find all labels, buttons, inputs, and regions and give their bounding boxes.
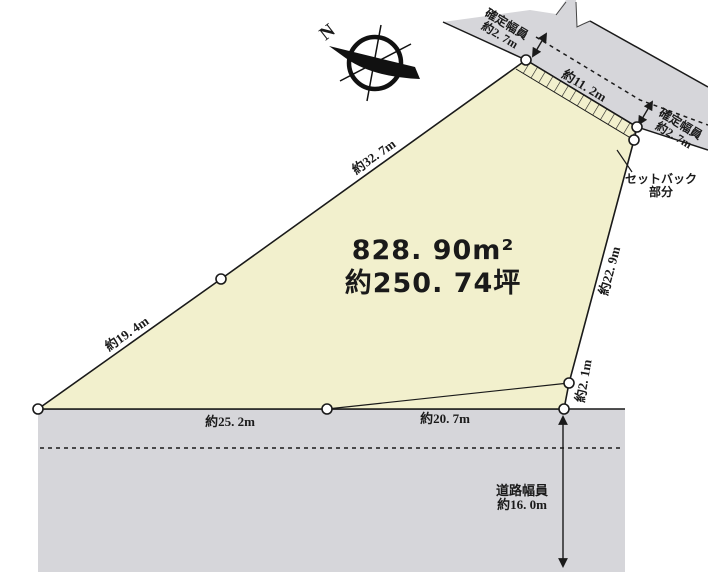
setback-line1: セットバック (625, 173, 697, 186)
area-square-meters: 828. 90m² (345, 235, 522, 268)
vertex-bottom-right (559, 404, 569, 414)
edge-label-bottom-right: 約20. 7m (420, 412, 470, 426)
vertex-bottom-left (33, 404, 43, 414)
area-label: 828. 90m² 約250. 74坪 (345, 235, 522, 301)
compass-icon (329, 25, 420, 101)
vertex-right-lower (564, 378, 574, 388)
road-width-line2: 約16. 0m (496, 498, 548, 512)
road-width-line1: 道路幅員 (496, 484, 548, 498)
setback-label: セットバック 部分 (625, 173, 697, 199)
compass-needle (329, 46, 420, 79)
road-width-label: 道路幅員 約16. 0m (496, 484, 548, 512)
vertex-bottom-middle (322, 404, 332, 414)
vertex-left-middle (216, 274, 226, 284)
vertex-setback-outer (632, 122, 642, 132)
vertex-setback-inner (629, 135, 639, 145)
setback-line2: 部分 (625, 186, 697, 199)
area-tsubo: 約250. 74坪 (345, 268, 522, 301)
vertex-top (521, 55, 531, 65)
land-plot-diagram: 828. 90m² 約250. 74坪 約32. 7m 約19. 4m 約25.… (0, 0, 708, 584)
land-parcel-shape (38, 60, 637, 409)
edge-label-bottom-left: 約25. 2m (205, 415, 255, 429)
